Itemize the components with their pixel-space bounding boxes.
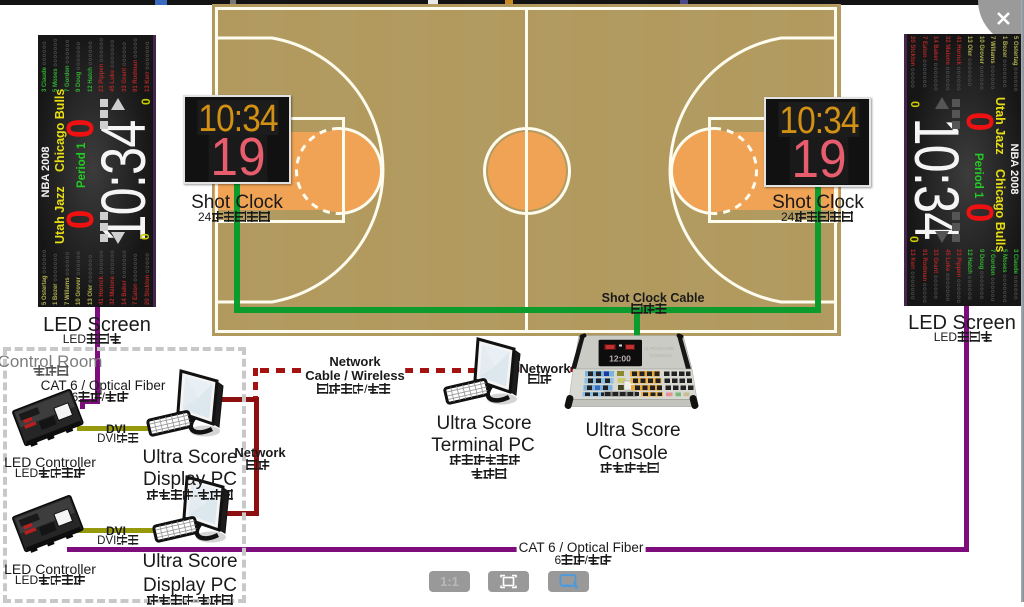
svg-text:CONSOLE: CONSOLE — [650, 353, 672, 358]
svg-text:ULTRASCORE: ULTRASCORE — [644, 346, 674, 351]
svg-text:12:00: 12:00 — [609, 354, 631, 364]
